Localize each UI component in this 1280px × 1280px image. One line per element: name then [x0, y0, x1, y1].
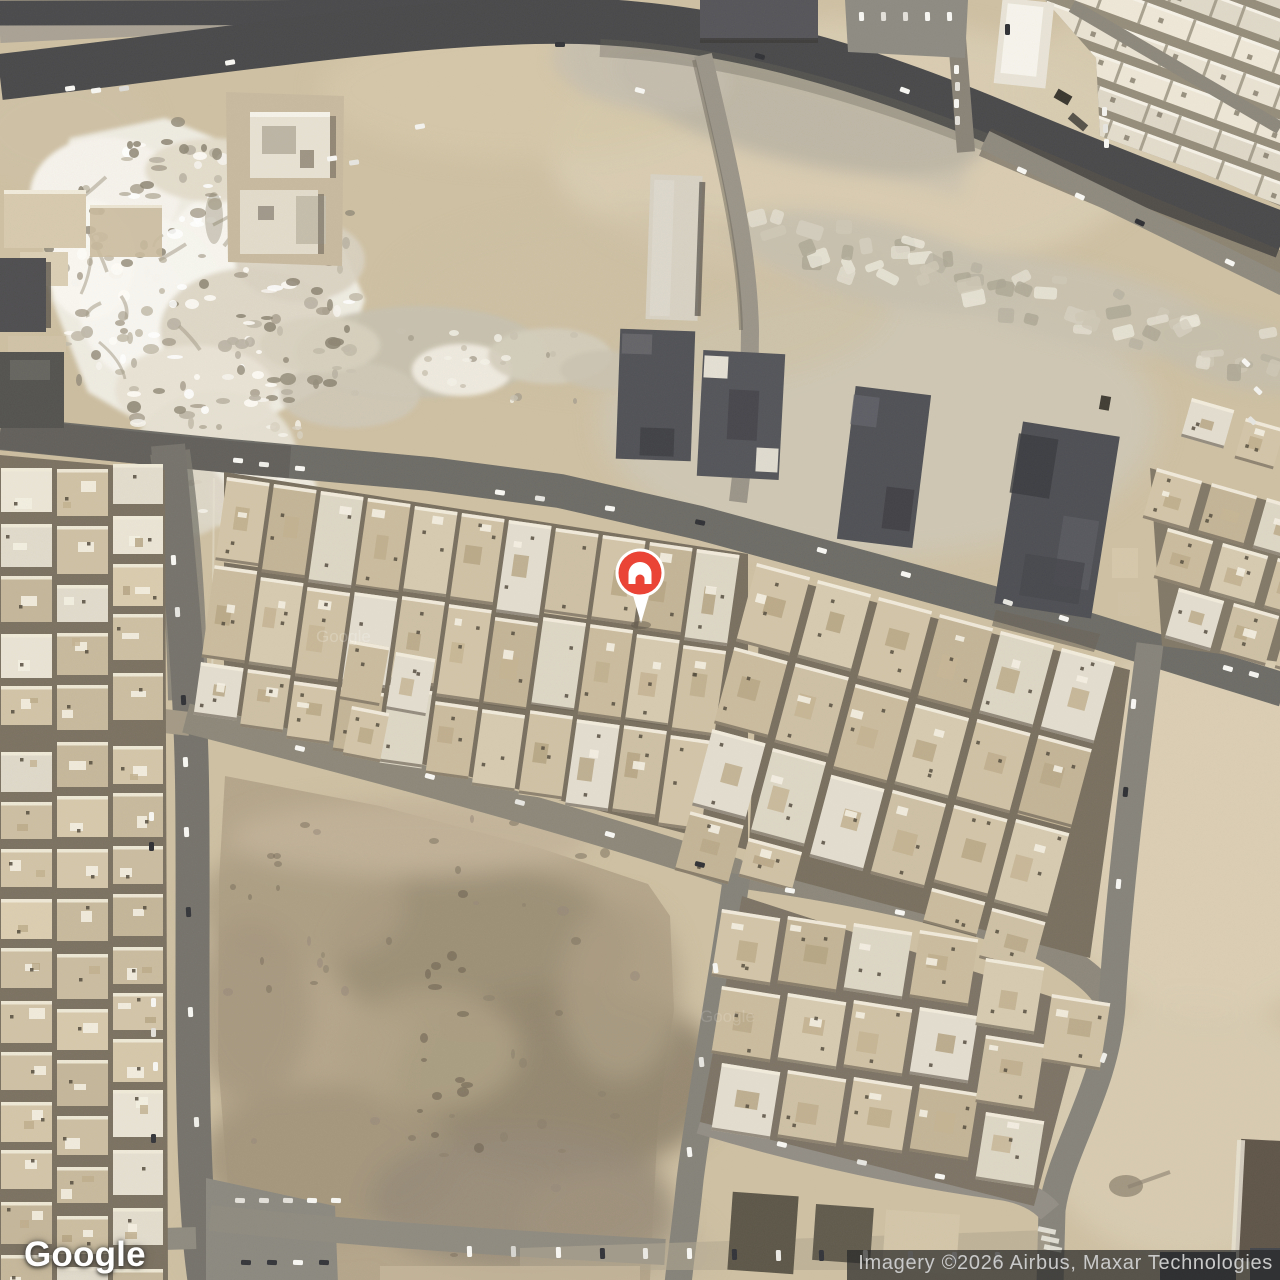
svg-text:Google: Google — [700, 1007, 755, 1026]
svg-text:Google: Google — [316, 627, 371, 646]
